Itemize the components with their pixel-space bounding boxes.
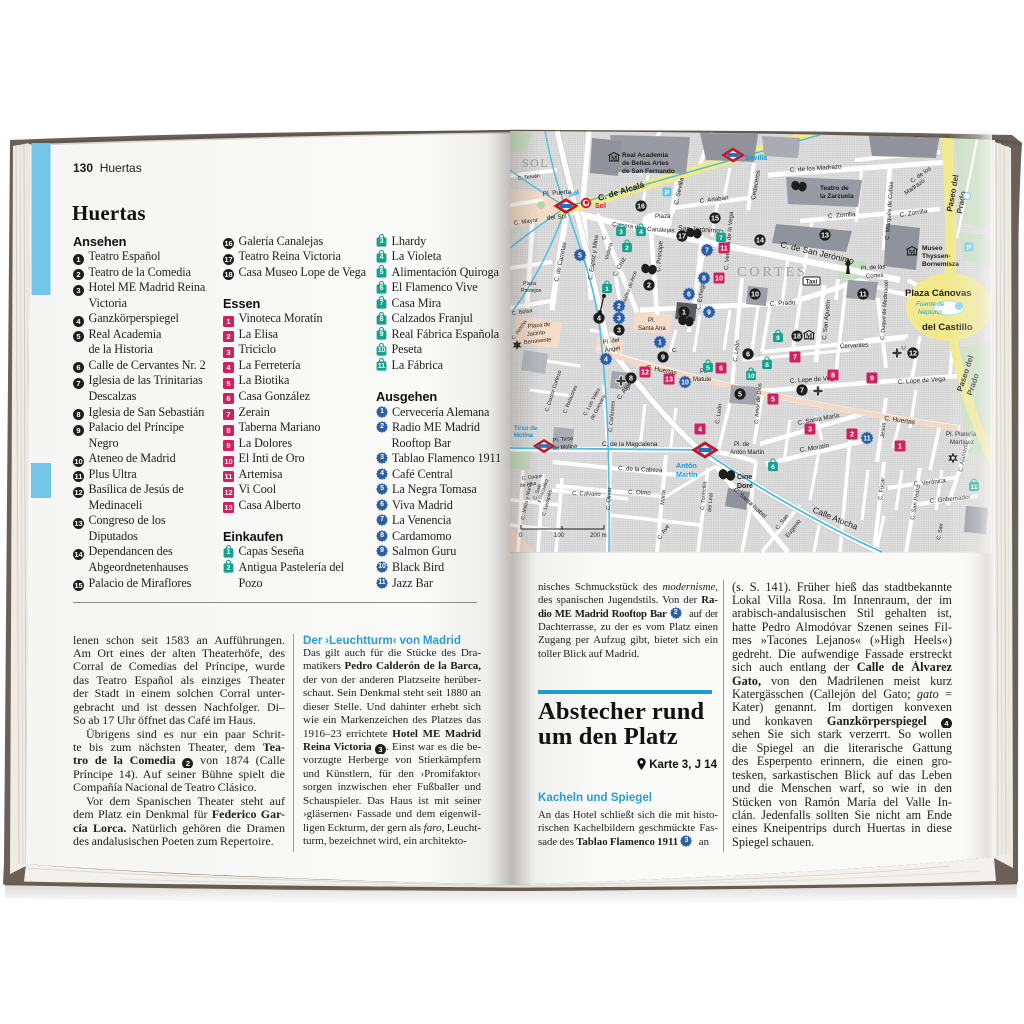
svg-text:M: M <box>806 333 813 341</box>
svg-text:C.: C. <box>901 344 908 350</box>
svg-text:Real Academia: Real Academia <box>622 152 668 159</box>
svg-text:18: 18 <box>793 332 801 341</box>
svg-text:10: 10 <box>681 380 689 387</box>
svg-text:C. Calvario: C. Calvario <box>572 491 601 498</box>
svg-text:13: 13 <box>821 231 829 240</box>
svg-text:Teatro de: Teatro de <box>820 185 849 192</box>
svg-text:Sol: Sol <box>595 203 606 210</box>
svg-text:2: 2 <box>625 245 629 252</box>
svg-text:Taxi: Taxi <box>806 280 818 286</box>
svg-text:Cortes: Cortes <box>866 273 884 280</box>
svg-text:5: 5 <box>771 395 775 404</box>
svg-text:C.: C. <box>672 348 677 354</box>
svg-text:Pl.: Pl. <box>648 318 655 324</box>
svg-text:8: 8 <box>831 371 835 380</box>
svg-text:1: 1 <box>898 442 902 451</box>
svg-text:10: 10 <box>715 274 723 283</box>
svg-text:5: 5 <box>738 390 742 399</box>
svg-text:Pl. de: Pl. de <box>734 442 750 448</box>
svg-text:7: 7 <box>705 248 709 255</box>
svg-text:Antón: Antón <box>676 461 697 470</box>
svg-text:Canalejas: Canalejas <box>647 226 675 234</box>
svg-text:9: 9 <box>870 374 874 383</box>
svg-text:9: 9 <box>707 310 711 317</box>
svg-text:Doré: Doré <box>737 483 753 490</box>
svg-text:200 m: 200 m <box>590 533 607 539</box>
svg-text:Museo: Museo <box>922 245 943 252</box>
svg-text:14: 14 <box>756 236 764 245</box>
svg-text:3: 3 <box>808 425 812 434</box>
svg-text:Thyssen-: Thyssen- <box>922 253 951 260</box>
svg-text:3: 3 <box>617 326 621 335</box>
svg-text:5: 5 <box>578 253 582 260</box>
svg-text:1: 1 <box>605 286 609 293</box>
svg-text:1: 1 <box>658 340 662 347</box>
svg-text:CORTES: CORTES <box>737 265 808 280</box>
svg-text:M: M <box>909 249 916 257</box>
svg-text:Neptuno: Neptuno <box>918 309 942 316</box>
svg-text:M: M <box>611 155 618 163</box>
svg-text:Cervantes: Cervantes <box>840 342 869 350</box>
svg-text:P: P <box>664 188 669 197</box>
svg-text:17: 17 <box>678 232 686 241</box>
svg-text:3: 3 <box>617 316 621 323</box>
svg-text:11: 11 <box>859 290 867 299</box>
svg-text:7: 7 <box>800 386 804 395</box>
svg-text:9: 9 <box>776 335 780 342</box>
svg-text:7: 7 <box>719 235 723 242</box>
svg-text:Santa Ana: Santa Ana <box>638 326 666 332</box>
svg-text:16: 16 <box>637 202 645 211</box>
svg-text:Matute: Matute <box>693 377 712 383</box>
svg-text:11: 11 <box>720 244 728 253</box>
svg-text:2: 2 <box>850 430 854 439</box>
svg-text:10: 10 <box>751 290 759 299</box>
svg-text:11: 11 <box>863 436 871 443</box>
svg-text:3: 3 <box>619 229 623 236</box>
svg-text:5: 5 <box>706 365 710 372</box>
svg-text:C. Olivar: C. Olivar <box>606 487 613 510</box>
svg-text:8: 8 <box>702 276 706 283</box>
svg-text:4: 4 <box>597 314 601 323</box>
svg-text:4: 4 <box>698 425 702 434</box>
svg-text:6: 6 <box>687 292 691 299</box>
svg-text:6: 6 <box>771 464 775 471</box>
svg-text:Plaza: Plaza <box>655 213 671 220</box>
svg-text:C. Olmo: C. Olmo <box>628 489 651 497</box>
svg-text:12: 12 <box>909 349 917 358</box>
svg-text:C. de la Magdalena: C. de la Magdalena <box>602 441 658 448</box>
svg-text:Sevilla: Sevilla <box>745 155 767 162</box>
svg-text:13: 13 <box>665 375 673 384</box>
svg-text:7: 7 <box>793 353 797 362</box>
svg-text:Antón Martín: Antón Martín <box>730 450 764 456</box>
svg-text:Martín: Martín <box>676 470 698 479</box>
svg-text:1: 1 <box>682 308 686 317</box>
svg-text:12: 12 <box>641 368 649 377</box>
svg-text:de Bellas Artes: de Bellas Artes <box>622 160 669 167</box>
svg-text:10: 10 <box>747 373 755 380</box>
svg-text:8: 8 <box>629 374 633 383</box>
svg-text:2: 2 <box>617 304 621 311</box>
svg-text:6: 6 <box>746 350 750 359</box>
svg-text:la Zarzuela: la Zarzuela <box>820 193 854 200</box>
svg-text:9: 9 <box>661 353 665 362</box>
svg-text:Fuente de: Fuente de <box>916 301 945 308</box>
svg-text:4: 4 <box>604 357 608 364</box>
svg-text:Cine: Cine <box>737 474 752 481</box>
svg-text:2: 2 <box>647 281 651 290</box>
svg-text:4: 4 <box>639 229 643 236</box>
svg-text:15: 15 <box>711 214 719 223</box>
svg-text:6: 6 <box>719 364 723 373</box>
svg-text:8: 8 <box>765 362 769 369</box>
svg-text:de San Fernando: de San Fernando <box>622 168 675 175</box>
svg-text:100: 100 <box>554 533 565 539</box>
